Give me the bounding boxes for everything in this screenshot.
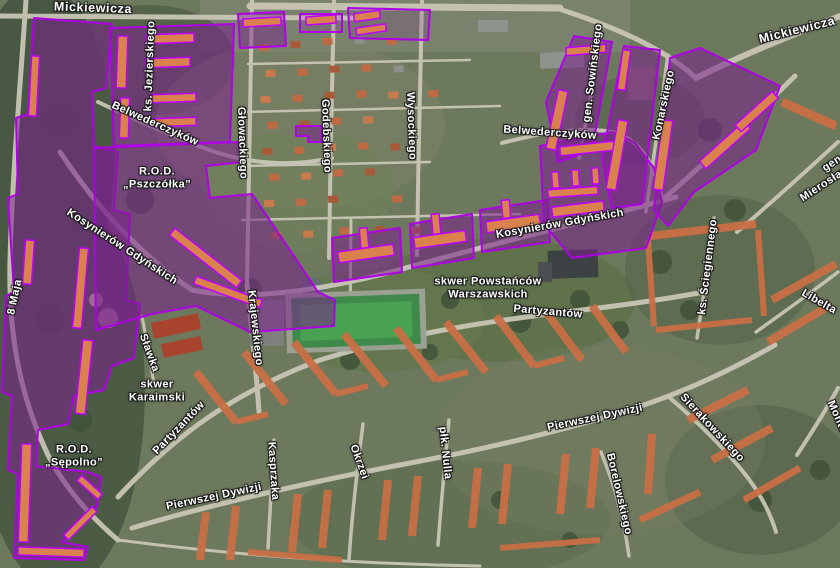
- map-viewport[interactable]: Mickiewicza Mickiewicza ks. Jezierskiego…: [0, 0, 840, 568]
- map-canvas[interactable]: [0, 0, 840, 568]
